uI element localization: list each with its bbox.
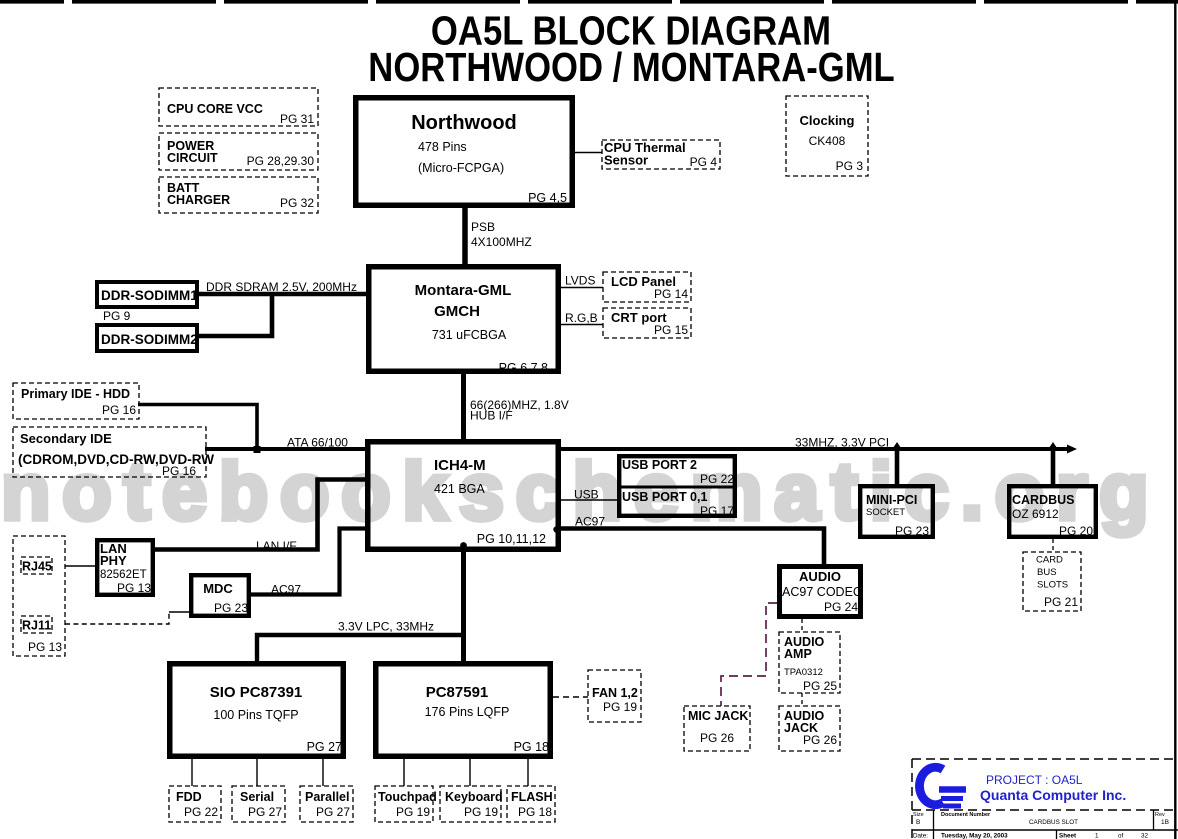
svg-text:Touchpad: Touchpad [378,790,437,804]
svg-text:DDR SDRAM 2.5V, 200MHz: DDR SDRAM 2.5V, 200MHz [206,280,357,294]
svg-text:CARD: CARD [1036,555,1063,566]
svg-text:AC97 CODEC: AC97 CODEC [782,585,862,599]
svg-text:PG 18: PG 18 [514,740,549,754]
svg-text:176 Pins LQFP: 176 Pins LQFP [425,705,510,719]
svg-text:Serial: Serial [240,790,274,804]
svg-text:4X100MHZ: 4X100MHZ [471,235,532,249]
svg-text:PHY: PHY [100,553,127,568]
svg-text:478 Pins: 478 Pins [418,140,467,154]
svg-text:PG 24: PG 24 [824,600,858,614]
svg-text:of: of [1118,833,1124,839]
svg-text:PG 21: PG 21 [1044,595,1078,609]
svg-text:PG 13: PG 13 [117,581,151,595]
svg-text:PG 16: PG 16 [162,464,196,478]
svg-text:DDR-SODIMM2: DDR-SODIMM2 [101,332,198,347]
svg-text:Size: Size [913,812,924,818]
svg-text:PG 22: PG 22 [700,472,734,486]
svg-text:PG 9: PG 9 [103,309,131,323]
svg-text:HUB I/F: HUB I/F [470,409,513,423]
svg-text:Primary IDE - HDD: Primary IDE - HDD [21,387,130,401]
svg-text:PG 31: PG 31 [280,112,314,126]
svg-text:AC97: AC97 [575,515,605,529]
svg-text:Northwood: Northwood [411,112,517,134]
svg-text:CARDBUS SLOT: CARDBUS SLOT [1029,819,1078,826]
svg-text:R.G,B: R.G,B [565,311,598,325]
svg-text:DDR-SODIMM1: DDR-SODIMM1 [101,288,198,303]
svg-text:1: 1 [1095,833,1099,839]
svg-text:Quanta Computer Inc.: Quanta Computer Inc. [980,787,1126,803]
svg-text:RJ11: RJ11 [22,619,51,633]
svg-text:PG 25: PG 25 [803,679,837,693]
svg-text:SOCKET: SOCKET [866,507,905,518]
svg-text:PG 26: PG 26 [700,731,734,745]
svg-text:FAN 1,2: FAN 1,2 [592,686,638,700]
svg-text:PG 3: PG 3 [836,159,864,173]
svg-text:CPU CORE VCC: CPU CORE VCC [167,102,263,116]
svg-text:82562ET: 82562ET [100,569,147,581]
svg-text:PG 17: PG 17 [700,504,734,518]
svg-text:AUDIO: AUDIO [799,569,841,584]
svg-text:731 uFCBGA: 731 uFCBGA [432,328,507,342]
svg-text:RJ45: RJ45 [22,560,52,574]
svg-text:PC87591: PC87591 [426,684,489,701]
svg-text:421 BGA: 421 BGA [434,482,485,496]
svg-text:Document Number: Document Number [941,812,991,818]
svg-text:PG 27: PG 27 [248,805,282,819]
svg-text:FLASH: FLASH [511,790,553,804]
svg-text:PG 32: PG 32 [280,196,314,210]
svg-text:Keyboard: Keyboard [445,790,503,804]
svg-text:(Micro-FCPGA): (Micro-FCPGA) [418,161,504,175]
svg-text:PSB: PSB [471,220,495,234]
svg-text:PG 23: PG 23 [895,524,929,538]
svg-text:FDD: FDD [176,790,202,804]
svg-text:CARDBUS: CARDBUS [1012,493,1075,507]
svg-text:USB PORT 0,1: USB PORT 0,1 [622,490,707,504]
svg-text:PG 19: PG 19 [396,805,430,819]
svg-text:Date:: Date: [913,833,928,839]
svg-text:B: B [916,819,920,826]
svg-text:Sensor: Sensor [604,153,648,168]
svg-text:SLOTS: SLOTS [1037,580,1068,591]
svg-text:Parallel: Parallel [305,790,349,804]
svg-text:TPA0312: TPA0312 [784,667,823,678]
svg-text:MDC: MDC [203,581,233,596]
svg-text:Clocking: Clocking [800,113,855,128]
svg-text:CK408: CK408 [809,134,846,148]
svg-text:PROJECT : OA5L: PROJECT : OA5L [986,773,1083,787]
svg-text:BUS: BUS [1037,567,1057,578]
svg-text:PG 10,11,12: PG 10,11,12 [477,532,546,546]
svg-text:PG 23: PG 23 [214,601,248,615]
svg-text:CHARGER: CHARGER [167,193,230,207]
svg-text:PG 14: PG 14 [654,287,688,301]
svg-text:3.3V LPC, 33MHz: 3.3V LPC, 33MHz [338,620,434,634]
svg-text:NORTHWOOD / MONTARA-GML: NORTHWOOD / MONTARA-GML [368,45,894,90]
svg-text:USB: USB [574,488,599,502]
svg-text:ATA 66/100: ATA 66/100 [287,436,348,450]
svg-text:PG 20: PG 20 [1059,524,1093,538]
svg-text:33MHZ, 3.3V PCI: 33MHZ, 3.3V PCI [795,436,889,450]
svg-text:Secondary IDE: Secondary IDE [20,431,112,446]
svg-text:PG 27: PG 27 [307,740,342,754]
svg-text:GMCH: GMCH [434,303,480,320]
svg-text:ICH4-M: ICH4-M [434,457,486,474]
svg-text:PG 18: PG 18 [518,805,552,819]
svg-text:Rev: Rev [1155,812,1165,818]
svg-text:MINI-PCI: MINI-PCI [866,493,917,507]
svg-text:Tuesday, May 20, 2003: Tuesday, May 20, 2003 [941,833,1008,839]
svg-text:PG 13: PG 13 [28,640,62,654]
svg-text:MIC JACK: MIC JACK [688,709,748,723]
svg-text:PG 4,5: PG 4,5 [528,191,567,205]
svg-text:1B: 1B [1161,819,1169,826]
svg-text:PG 19: PG 19 [464,805,498,819]
svg-text:Montara-GML: Montara-GML [415,282,512,299]
svg-text:LAN I/F: LAN I/F [256,539,297,553]
svg-text:PG 28,29.30: PG 28,29.30 [247,154,315,168]
svg-text:PG 27: PG 27 [316,805,350,819]
svg-text:PG 22: PG 22 [184,805,218,819]
svg-text:AC97: AC97 [271,583,301,597]
svg-text:Sheet: Sheet [1059,833,1077,839]
svg-text:PG 4: PG 4 [690,155,718,169]
svg-text:PG 19: PG 19 [603,700,637,714]
svg-text:PG 26: PG 26 [803,733,837,747]
svg-text:USB PORT 2: USB PORT 2 [622,458,697,472]
svg-text:100 Pins TQFP: 100 Pins TQFP [213,708,298,722]
svg-text:32: 32 [1141,833,1149,839]
svg-text:CIRCUIT: CIRCUIT [167,151,218,165]
svg-text:SIO PC87391: SIO PC87391 [210,684,303,701]
svg-text:PG 15: PG 15 [654,323,688,337]
svg-text:LVDS: LVDS [565,274,595,288]
svg-text:OZ 6912: OZ 6912 [1012,507,1059,521]
svg-text:PG 16: PG 16 [102,403,136,417]
svg-text:PG 6,7,8: PG 6,7,8 [499,361,548,375]
svg-text:AMP: AMP [784,647,812,661]
